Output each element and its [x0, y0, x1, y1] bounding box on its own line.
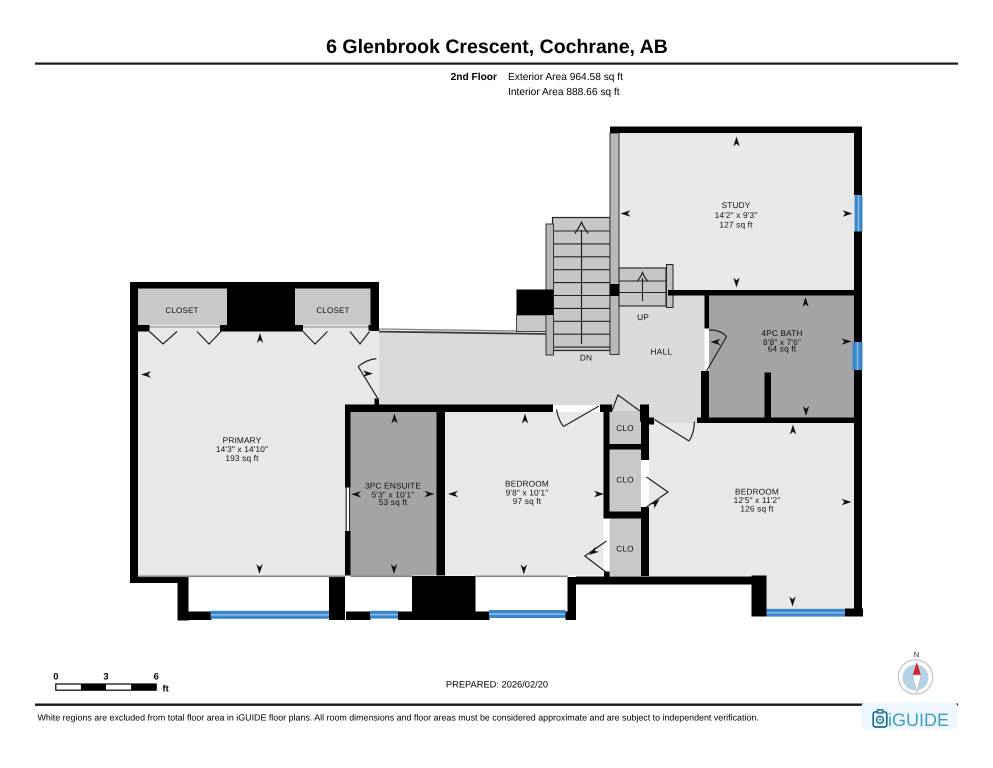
- svg-text:64 sq ft: 64 sq ft: [768, 344, 797, 354]
- svg-text:127 sq ft: 127 sq ft: [719, 220, 753, 230]
- svg-text:CLO: CLO: [616, 423, 634, 433]
- svg-text:iGUIDE: iGUIDE: [888, 710, 949, 730]
- svg-text:126 sq ft: 126 sq ft: [740, 503, 774, 513]
- svg-text:193 sq ft: 193 sq ft: [225, 453, 259, 463]
- svg-text:HALL: HALL: [651, 347, 673, 357]
- svg-text:ft: ft: [163, 684, 169, 694]
- svg-text:CLO: CLO: [616, 544, 634, 554]
- svg-text:PREPARED: 2026/02/20: PREPARED: 2026/02/20: [446, 680, 548, 690]
- svg-text:2nd Floor: 2nd Floor: [451, 72, 497, 83]
- svg-text:14'2" x 9'3": 14'2" x 9'3": [715, 210, 758, 220]
- svg-text:0: 0: [53, 672, 58, 682]
- svg-text:6 Glenbrook Crescent, Cochrane: 6 Glenbrook Crescent, Cochrane, AB: [326, 36, 668, 58]
- svg-text:CLO: CLO: [616, 475, 634, 485]
- svg-text:DN: DN: [580, 353, 592, 363]
- svg-text:STUDY: STUDY: [722, 200, 751, 210]
- svg-text:White regions are excluded fro: White regions are excluded from total fl…: [38, 713, 759, 723]
- svg-text:Interior Area 888.66 sq ft: Interior Area 888.66 sq ft: [508, 87, 620, 98]
- svg-text:3: 3: [103, 672, 108, 682]
- svg-text:97 sq ft: 97 sq ft: [513, 496, 542, 506]
- svg-text:6: 6: [154, 672, 159, 682]
- svg-text:CLOSET: CLOSET: [165, 306, 198, 315]
- svg-text:CLOSET: CLOSET: [316, 306, 349, 315]
- svg-text:Exterior Area 964.58 sq ft: Exterior Area 964.58 sq ft: [508, 72, 623, 83]
- svg-text:UP: UP: [637, 312, 649, 322]
- svg-text:N: N: [914, 650, 919, 659]
- svg-text:53 sq ft: 53 sq ft: [379, 497, 408, 507]
